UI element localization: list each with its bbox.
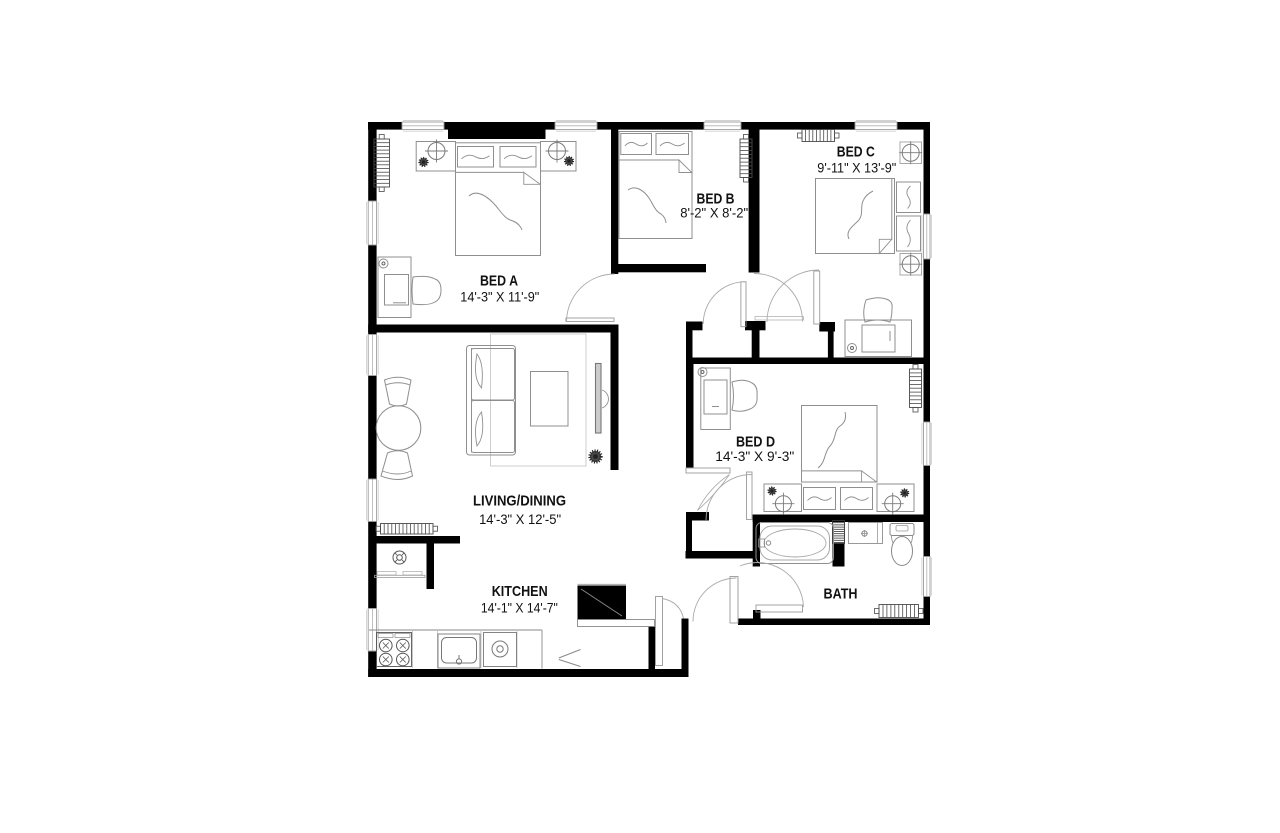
svg-text:9'-11" X 13'-9": 9'-11" X 13'-9" bbox=[817, 161, 896, 176]
svg-text:14'-3" X 9'-3": 14'-3" X 9'-3" bbox=[715, 449, 794, 464]
svg-text:BED D: BED D bbox=[736, 434, 775, 451]
svg-text:14'-3" X 12'-5": 14'-3" X 12'-5" bbox=[479, 512, 561, 527]
svg-text:LIVING/DINING: LIVING/DINING bbox=[473, 493, 566, 510]
svg-text:BATH: BATH bbox=[824, 586, 858, 603]
svg-text:KITCHEN: KITCHEN bbox=[492, 583, 548, 600]
svg-text:14'-1" X 14'-7": 14'-1" X 14'-7" bbox=[481, 601, 558, 616]
svg-text:BED C: BED C bbox=[837, 144, 875, 161]
svg-text:8'-2" X 8'-2": 8'-2" X 8'-2" bbox=[680, 206, 748, 221]
svg-text:BED A: BED A bbox=[480, 273, 518, 290]
svg-text:14'-3" X 11'-9": 14'-3" X 11'-9" bbox=[460, 290, 539, 305]
